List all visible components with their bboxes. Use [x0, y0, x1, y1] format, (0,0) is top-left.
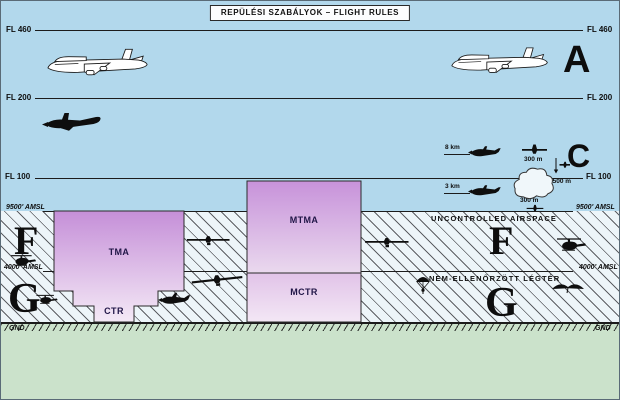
jet-airliner-right-icon [449, 45, 553, 81]
uncontrolled-airspace-en-label: UNCONTROLLED AIRSPACE [431, 215, 557, 223]
glider-icon-3 [364, 237, 410, 249]
ctr-label: CTR [92, 307, 136, 316]
plane-top-view-lower-icon [526, 203, 544, 212]
gnd-label-left: GND [9, 325, 25, 332]
mctr-zone-shape [247, 273, 361, 322]
class-f-label-right: F [489, 225, 513, 257]
class-g-label-right: G [485, 287, 518, 321]
helicopter-left-g-icon [35, 293, 59, 305]
amsl9500-label-left: 9500' AMSL [6, 204, 45, 211]
tma-label: TMA [97, 248, 141, 257]
plane-top-view-upper-icon [521, 143, 548, 154]
gnd-label-right: GND [595, 325, 611, 332]
mctr-label: MCTR [278, 288, 330, 297]
fl460-label-left: FL 460 [6, 26, 31, 34]
class-f-label-left: F [14, 225, 38, 257]
mtma-label: MTMA [278, 216, 330, 225]
fl200-label-left: FL 200 [6, 94, 31, 102]
visibility-3km-label: 3 km [444, 184, 470, 194]
uncontrolled-airspace-hu-label: NEM-ELLENŐRZÖTT LÉGTÉR [429, 275, 560, 283]
fl100-label-left: FL 100 [5, 173, 30, 181]
cloud-clearance-above-label: 300 m [524, 157, 542, 164]
class-a-label: A [563, 45, 590, 75]
flight-rules-diagram: REPÜLÉSI SZABÁLYOK – FLIGHT RULES FL 460… [0, 0, 620, 400]
fl460-label-right: FL 460 [587, 26, 612, 34]
helicopter-right-icon [555, 237, 588, 251]
hang-glider-icon [551, 280, 585, 296]
amsl9500-label-right: 9500' AMSL [576, 204, 615, 211]
page-title: REPÜLÉSI SZABÁLYOK – FLIGHT RULES [210, 5, 410, 21]
visibility-8km-label: 8 km [444, 145, 470, 155]
class-c-label: C [567, 144, 590, 170]
jet-airliner-left-icon [45, 47, 153, 83]
amsl4000-label-right: 4000' AMSL [579, 264, 618, 271]
glider-icon-1 [186, 235, 231, 247]
mtma-zone-shape [247, 181, 361, 273]
turboprop-icon [41, 111, 103, 139]
parachutist-icon [415, 275, 431, 295]
light-aircraft-step-icon [157, 292, 191, 307]
light-twin-8km-icon [467, 146, 501, 159]
fl200-label-right: FL 200 [587, 94, 612, 102]
cumulus-cloud-icon [511, 165, 554, 200]
amsl4000-label-left: 4000' AMSL [4, 264, 43, 271]
light-twin-3km-icon [467, 185, 501, 198]
plane-descent-arrow-icon [552, 157, 570, 174]
fl100-label-right: FL 100 [586, 173, 611, 181]
